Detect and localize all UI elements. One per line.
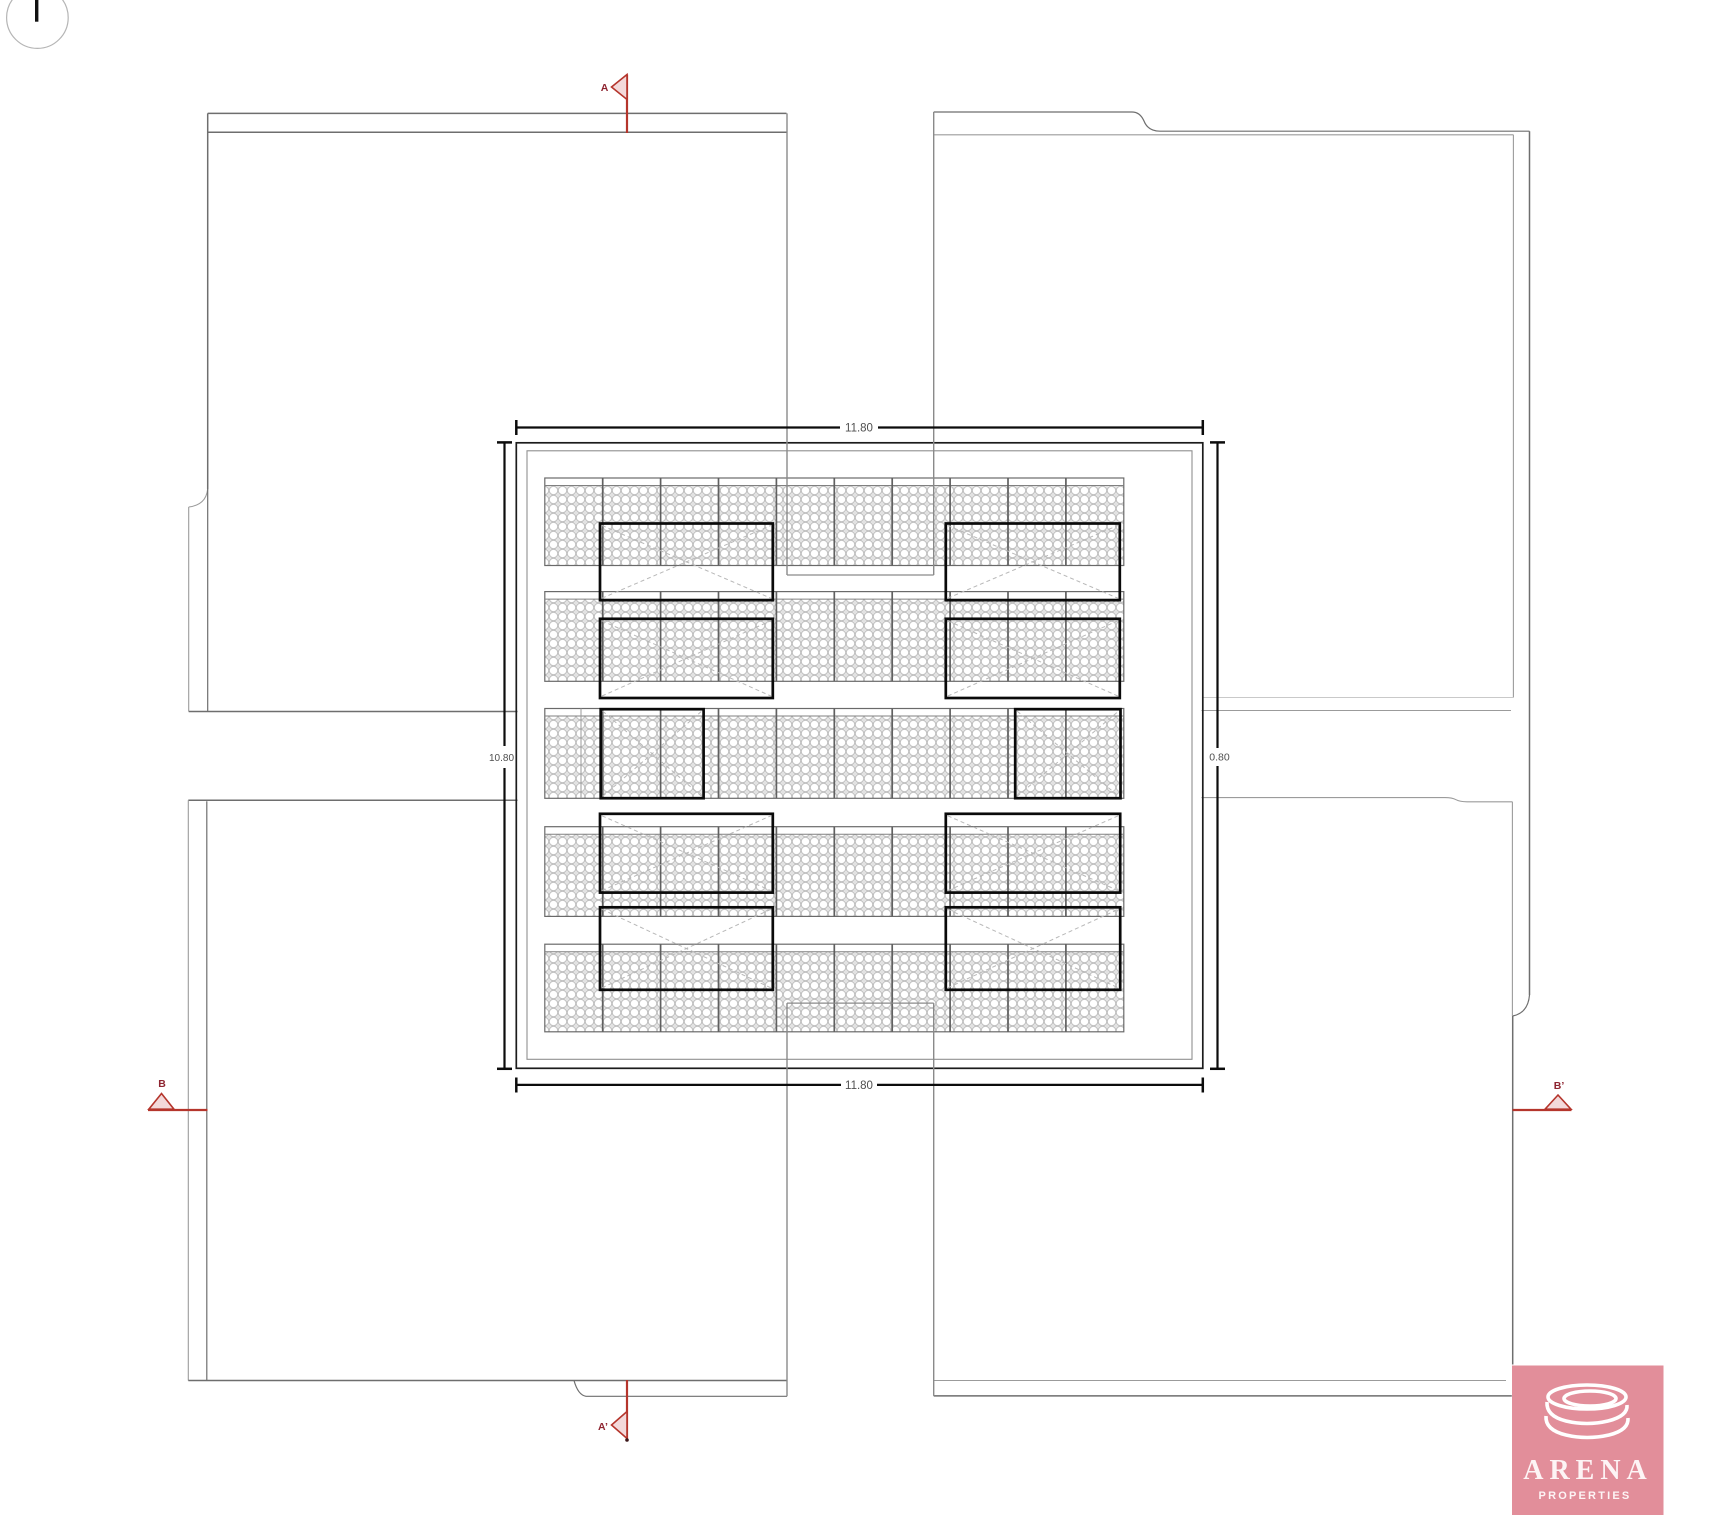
svg-text:11.80: 11.80 (845, 423, 873, 435)
svg-text:A’: A’ (598, 1421, 608, 1433)
svg-text:B’: B’ (1554, 1080, 1565, 1092)
svg-text:PROPERTIES: PROPERTIES (1539, 1490, 1632, 1502)
svg-text:A: A (601, 82, 609, 94)
svg-text:ARENA: ARENA (1523, 1455, 1653, 1486)
svg-text:0.80: 0.80 (1209, 752, 1230, 764)
svg-text:11.80: 11.80 (845, 1080, 873, 1092)
svg-text:B: B (158, 1078, 166, 1090)
svg-text:10.80: 10.80 (489, 753, 514, 764)
